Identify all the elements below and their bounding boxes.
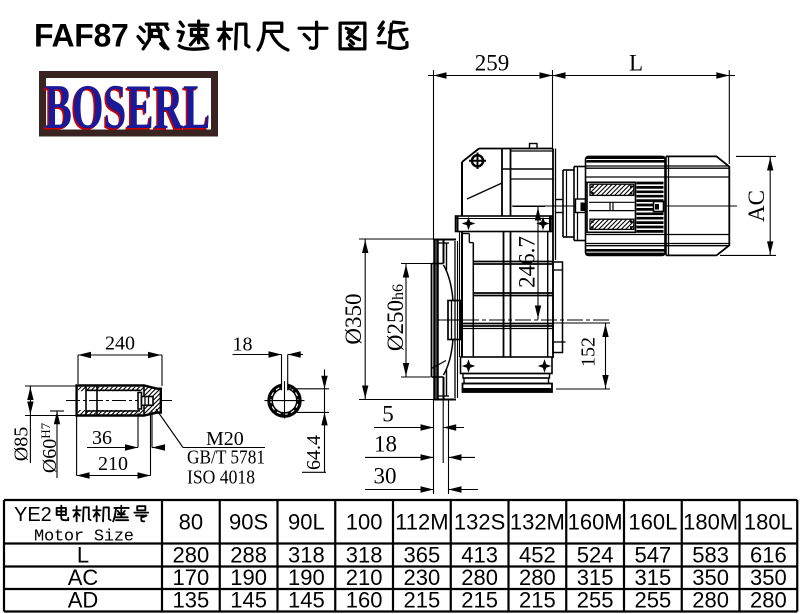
svg-text:215: 215 [404,588,441,613]
svg-text:100: 100 [346,510,383,535]
svg-text:180L: 180L [744,510,793,535]
svg-text:413: 413 [461,543,498,568]
svg-text:FAF87: FAF87 [34,18,129,54]
svg-text:315: 315 [635,565,672,590]
svg-text:AC: AC [744,190,769,222]
svg-text:246.7: 246.7 [515,236,540,288]
svg-text:215: 215 [519,588,556,613]
svg-text:135: 135 [173,588,210,613]
svg-text:210: 210 [98,453,128,475]
svg-text:30: 30 [374,464,397,489]
svg-text:132M: 132M [510,510,565,535]
svg-text:255: 255 [635,588,672,613]
svg-text:452: 452 [519,543,556,568]
svg-text:64.4: 64.4 [303,435,325,470]
svg-text:350: 350 [692,565,729,590]
svg-text:318: 318 [288,543,325,568]
svg-text:18: 18 [233,334,253,356]
svg-text:616: 616 [750,543,787,568]
svg-text:547: 547 [635,543,672,568]
svg-text:524: 524 [577,543,614,568]
svg-text:280: 280 [750,588,787,613]
svg-text:AC: AC [68,565,99,590]
svg-text:112M: 112M [395,510,448,535]
svg-text:L: L [629,51,643,76]
svg-text:145: 145 [230,588,267,613]
svg-text:90S: 90S [229,510,268,535]
svg-text:288: 288 [230,543,267,568]
svg-text:Motor Size: Motor Size [34,528,134,547]
svg-text:18: 18 [374,431,397,456]
svg-text:255: 255 [577,588,614,613]
svg-text:Ø85: Ø85 [11,427,33,461]
svg-text:BOSERL: BOSERL [45,71,211,142]
svg-text:280: 280 [461,565,498,590]
svg-text:160: 160 [346,588,383,613]
svg-text:318: 318 [346,543,383,568]
svg-text:160M: 160M [568,510,623,535]
svg-text:132S: 132S [454,510,505,535]
svg-text:190: 190 [230,565,267,590]
svg-text:80: 80 [179,510,203,535]
svg-text:583: 583 [692,543,729,568]
svg-text:280: 280 [173,543,210,568]
svg-text:170: 170 [173,565,210,590]
svg-text:365: 365 [404,543,441,568]
svg-text:215: 215 [461,588,498,613]
svg-text:315: 315 [577,565,614,590]
svg-text:AD: AD [68,588,99,613]
svg-text:5: 5 [382,402,394,427]
svg-text:280: 280 [692,588,729,613]
svg-text:ISO 4018: ISO 4018 [187,467,255,489]
svg-text:190: 190 [288,565,325,590]
svg-text:152: 152 [578,337,600,367]
svg-text:YE2: YE2 [14,504,52,526]
svg-text:145: 145 [288,588,325,613]
svg-text:240: 240 [105,333,135,355]
svg-text:350: 350 [750,565,787,590]
svg-text:210: 210 [346,565,383,590]
svg-text:230: 230 [404,565,441,590]
svg-text:280: 280 [519,565,556,590]
svg-text:160L: 160L [628,510,677,535]
svg-text:259: 259 [475,51,510,76]
svg-text:180M: 180M [683,510,738,535]
svg-text:Ø350: Ø350 [341,293,366,344]
svg-text:90L: 90L [288,510,325,535]
svg-text:36: 36 [92,427,112,449]
svg-text:GB/T 5781: GB/T 5781 [187,447,265,469]
